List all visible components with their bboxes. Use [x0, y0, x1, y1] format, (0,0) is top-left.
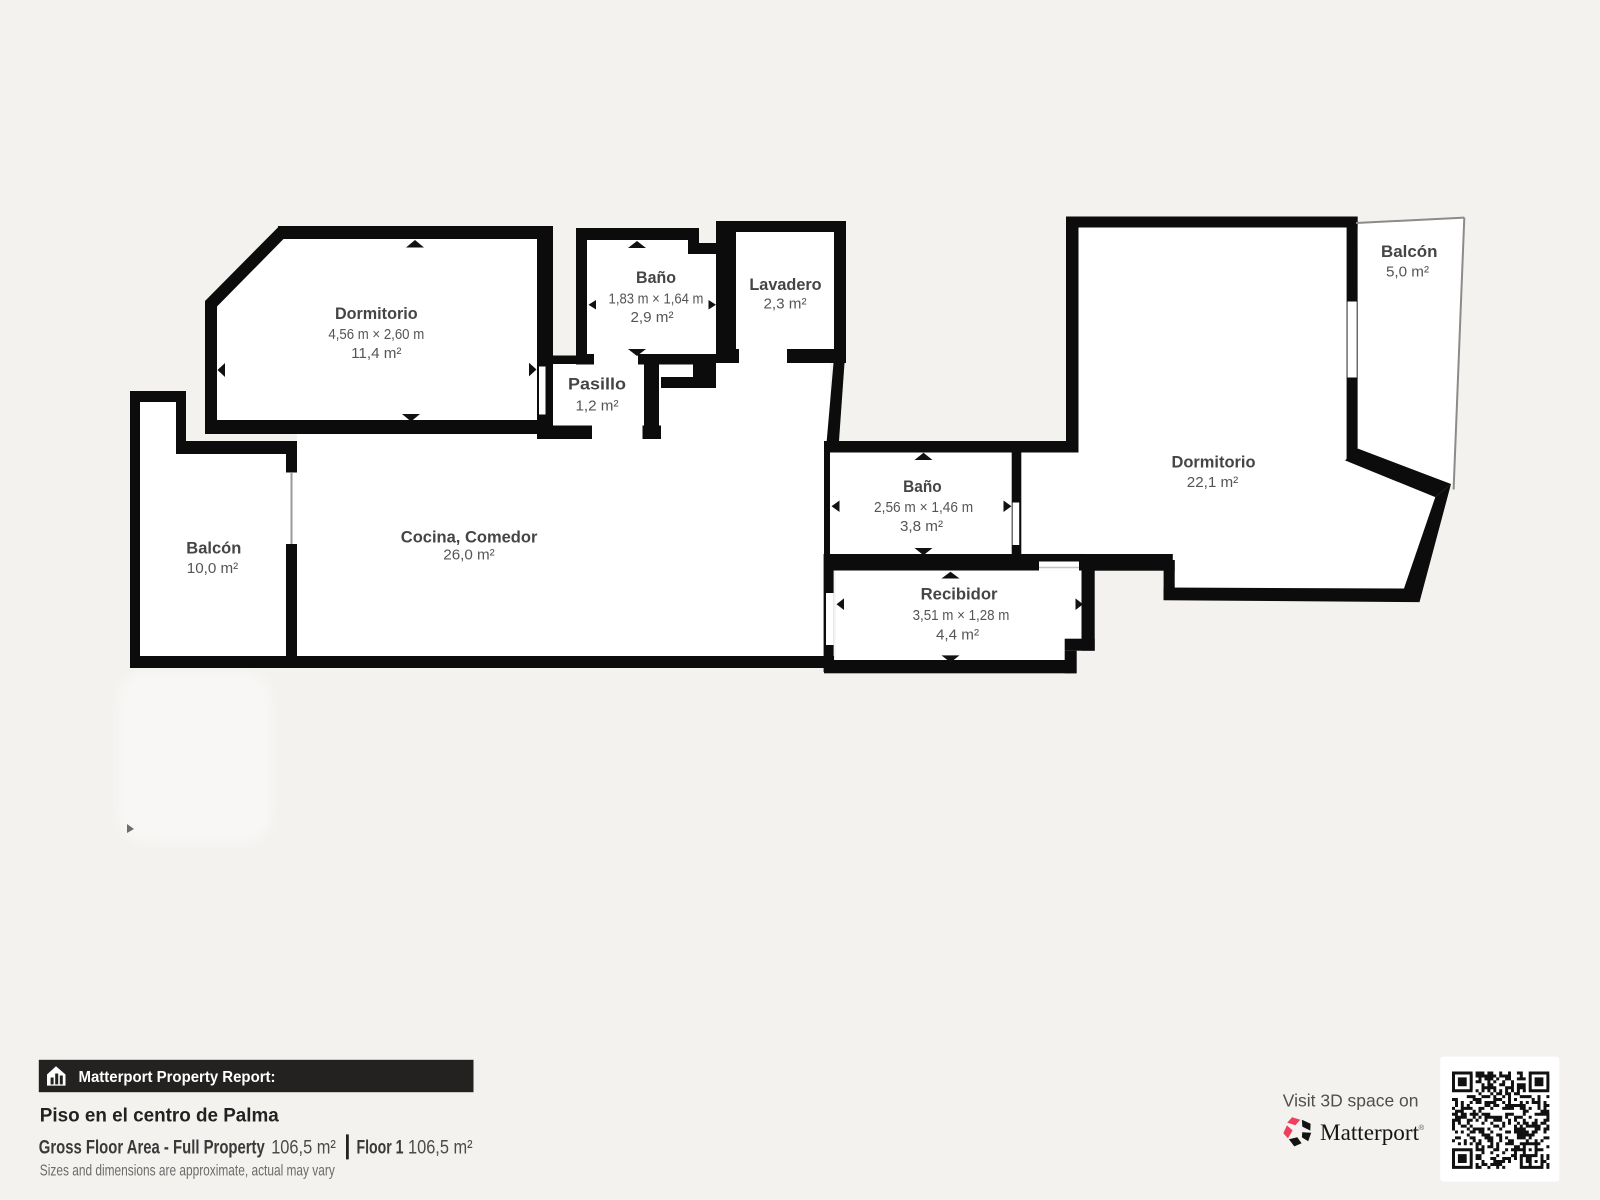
svg-text:2,56 m × 1,46 m: 2,56 m × 1,46 m: [874, 499, 973, 516]
svg-text:5,0 m²: 5,0 m²: [1386, 264, 1429, 281]
svg-text:106,5 m²: 106,5 m²: [271, 1137, 336, 1159]
svg-text:Visit 3D space on: Visit 3D space on: [1283, 1091, 1419, 1111]
svg-text:Balcón: Balcón: [186, 540, 241, 558]
svg-text:Matterport Property Report:: Matterport Property Report:: [79, 1069, 276, 1086]
svg-text:10,0 m²: 10,0 m²: [187, 560, 239, 577]
svg-text:4,56 m × 2,60 m: 4,56 m × 2,60 m: [328, 326, 424, 343]
svg-text:Baño: Baño: [636, 269, 676, 287]
svg-text:2,9 m²: 2,9 m²: [630, 309, 673, 326]
svg-text:1,83 m × 1,64 m: 1,83 m × 1,64 m: [609, 291, 704, 308]
svg-text:Lavadero: Lavadero: [749, 276, 821, 294]
svg-text:1,2 m²: 1,2 m²: [575, 398, 618, 415]
svg-text:22,1 m²: 22,1 m²: [1187, 474, 1239, 491]
svg-text:2,3 m²: 2,3 m²: [763, 296, 806, 313]
svg-text:Gross Floor Area - Full Proper: Gross Floor Area - Full Property: [39, 1137, 265, 1159]
svg-text:®: ®: [1419, 1123, 1425, 1132]
svg-text:Cocina, Comedor: Cocina, Comedor: [401, 529, 538, 547]
svg-text:Baño: Baño: [903, 478, 942, 496]
svg-text:Dormitorio: Dormitorio: [335, 305, 418, 323]
svg-text:Balcón: Balcón: [1381, 243, 1437, 261]
svg-text:4,4 m²: 4,4 m²: [936, 626, 979, 643]
svg-text:Piso en el centro de Palma: Piso en el centro de Palma: [40, 1104, 279, 1126]
svg-text:Sizes and dimensions are appro: Sizes and dimensions are approximate, ac…: [40, 1163, 335, 1180]
svg-text:3,8 m²: 3,8 m²: [900, 518, 943, 535]
svg-text:26,0 m²: 26,0 m²: [443, 547, 495, 564]
svg-text:Dormitorio: Dormitorio: [1172, 454, 1256, 472]
svg-text:106,5 m²: 106,5 m²: [408, 1137, 473, 1159]
svg-text:3,51 m × 1,28 m: 3,51 m × 1,28 m: [913, 607, 1010, 624]
svg-text:Matterport: Matterport: [1320, 1120, 1420, 1145]
svg-text:Floor 1: Floor 1: [357, 1137, 404, 1159]
svg-text:Recibidor: Recibidor: [921, 586, 998, 604]
svg-text:11,4 m²: 11,4 m²: [351, 345, 401, 362]
svg-text:Pasillo: Pasillo: [568, 376, 626, 394]
